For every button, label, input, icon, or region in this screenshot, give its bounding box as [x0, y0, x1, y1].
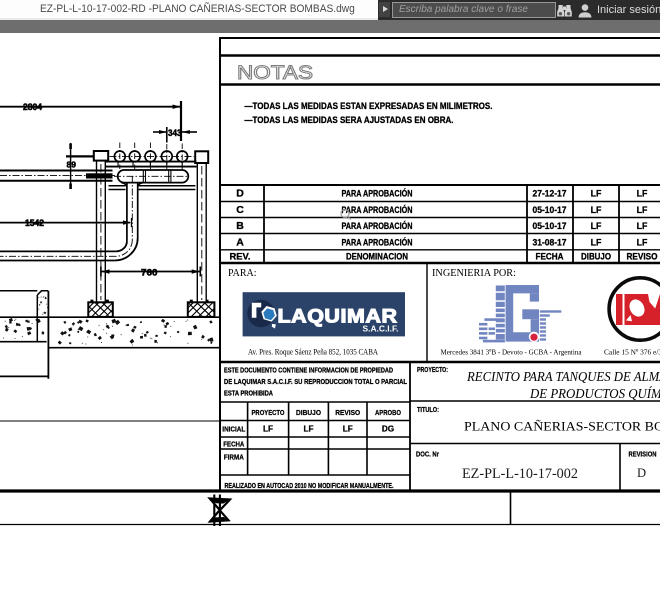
svg-text:D: D [236, 188, 244, 200]
svg-text:PARA APROBACIÓN: PARA APROBACIÓN [342, 188, 413, 199]
svg-text:05-10-17: 05-10-17 [533, 205, 567, 215]
svg-text:REVISO: REVISO [335, 408, 360, 417]
svg-text:REV.: REV. [230, 252, 251, 262]
svg-text:TITULO:: TITULO: [417, 406, 439, 414]
svg-text:ESTE DOCUMENTO CONTIENE INFORM: ESTE DOCUMENTO CONTIENE INFORMACION DE P… [224, 366, 393, 375]
svg-text:89: 89 [67, 160, 77, 170]
svg-text:PARA APROBACIÓN: PARA APROBACIÓN [342, 236, 413, 247]
svg-text:PROYECTO:: PROYECTO: [417, 366, 448, 374]
svg-text:Mercedes 3841 3ºB - Devoto - G: Mercedes 3841 3ºB - Devoto - GCBA - Arge… [441, 348, 582, 357]
svg-text:LF: LF [591, 189, 602, 199]
svg-text:LF: LF [303, 425, 313, 434]
svg-text:A: A [236, 236, 244, 248]
svg-text:LF: LF [591, 205, 602, 215]
svg-text:NOTAS: NOTAS [237, 63, 313, 84]
svg-text:DOC. Nr: DOC. Nr [416, 450, 439, 458]
svg-text:LF: LF [637, 189, 648, 199]
svg-text:—TODAS LAS MEDIDAS ESTAN EXPRE: —TODAS LAS MEDIDAS ESTAN EXPRESADAS EN M… [245, 100, 493, 111]
svg-text:LF: LF [343, 425, 353, 434]
svg-text:B: B [236, 220, 244, 232]
svg-text:INICIAL: INICIAL [222, 425, 246, 434]
svg-text:05-10-17: 05-10-17 [533, 221, 567, 231]
svg-text:PARA APROBACIÓN: PARA APROBACIÓN [342, 220, 413, 231]
svg-text:REVISION: REVISION [629, 450, 657, 458]
svg-text:LF: LF [263, 425, 273, 434]
svg-text:PLANO CAÑERIAS-SECTOR BO: PLANO CAÑERIAS-SECTOR BO [464, 420, 660, 434]
svg-text:RECINTO PARA TANQUES DE ALMA: RECINTO PARA TANQUES DE ALMA [466, 369, 660, 384]
svg-text:1542: 1542 [25, 218, 44, 228]
svg-text:DE PRODUCTOS QUÍMI: DE PRODUCTOS QUÍMI [529, 385, 660, 401]
svg-text:31-08-17: 31-08-17 [533, 237, 567, 247]
svg-text:Av. Pres. Roque Sáenz Peña 852: Av. Pres. Roque Sáenz Peña 852, 1035 CAB… [248, 348, 378, 357]
svg-text:EZ-PL-L-10-17-002: EZ-PL-L-10-17-002 [462, 466, 578, 482]
svg-text:C: C [236, 204, 244, 216]
svg-text:343: 343 [168, 128, 182, 138]
svg-text:LF: LF [637, 221, 648, 231]
svg-text:Calle 15 Nº 376 e/3: Calle 15 Nº 376 e/3 [604, 348, 660, 357]
svg-text:760: 760 [141, 267, 158, 277]
svg-text:LF: LF [637, 205, 648, 215]
svg-text:D: D [637, 466, 646, 480]
svg-text:FECHA: FECHA [223, 439, 244, 448]
svg-text:DENOMINACION: DENOMINACION [346, 252, 408, 262]
svg-text:FECHA: FECHA [536, 252, 564, 262]
svg-text:INGENIERIA POR:: INGENIERIA POR: [432, 268, 516, 279]
svg-text:PARA APROBACIÓN: PARA APROBACIÓN [342, 204, 413, 215]
svg-text:—TODAS LAS MEDIDAS SERA AJUSTA: —TODAS LAS MEDIDAS SERA AJUSTADAS EN OBR… [245, 114, 454, 125]
svg-text:LF: LF [591, 221, 602, 231]
svg-text:DIBUJO: DIBUJO [296, 408, 321, 417]
svg-text:ESTA PROHIBIDA: ESTA PROHIBIDA [224, 388, 273, 397]
svg-text:REVISO: REVISO [627, 252, 658, 262]
svg-text:DIBUJO: DIBUJO [581, 252, 611, 262]
svg-text:DG: DG [382, 425, 394, 434]
svg-text:DE LAQUIMAR S.A.C.I.F. SU REPR: DE LAQUIMAR S.A.C.I.F. SU REPRODUCCION T… [224, 377, 407, 386]
svg-text:PROYECTO: PROYECTO [252, 408, 285, 417]
svg-text:2804: 2804 [23, 102, 42, 112]
svg-text:S.A.C.I.F.: S.A.C.I.F. [363, 325, 399, 334]
svg-text:FIRMA: FIRMA [224, 453, 244, 462]
svg-text:PARA:: PARA: [228, 268, 257, 279]
svg-text:LF: LF [591, 237, 602, 247]
svg-text:27-12-17: 27-12-17 [533, 189, 567, 199]
svg-text:REALIZADO EN AUTOCAD 2010 NO M: REALIZADO EN AUTOCAD 2010 NO MODIFICAR M… [225, 481, 394, 490]
svg-text:LF: LF [637, 237, 648, 247]
svg-text:APROBO: APROBO [375, 408, 401, 417]
